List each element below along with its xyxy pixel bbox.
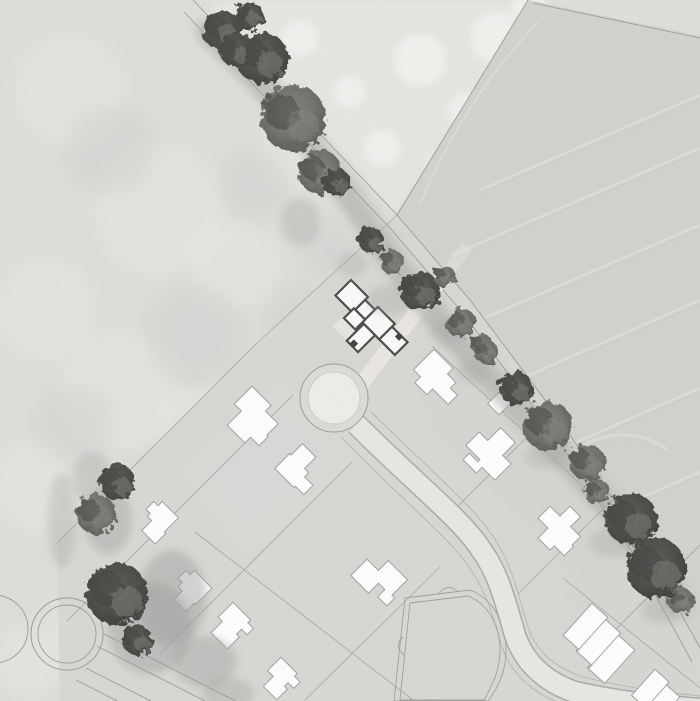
site-plan-canvas bbox=[0, 0, 700, 701]
photo-grain-overlay bbox=[0, 0, 700, 701]
grain-noise bbox=[0, 0, 700, 701]
site-plan-screenshot bbox=[0, 0, 700, 701]
